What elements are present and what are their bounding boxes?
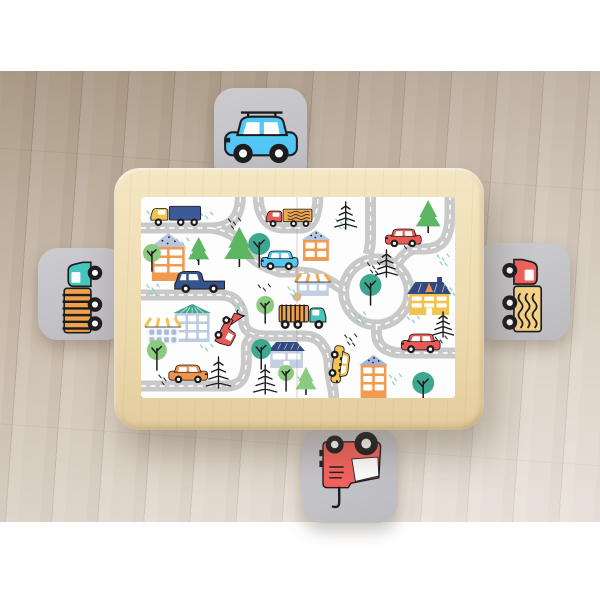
stool-bottom xyxy=(302,428,398,523)
kids-play-table xyxy=(114,168,484,430)
upside-down-tow-truck-decal xyxy=(305,431,395,521)
wall-background xyxy=(0,0,600,71)
stool-left xyxy=(38,248,126,340)
stool-right xyxy=(476,243,570,340)
city-road-map-artwork xyxy=(141,197,455,398)
foreground-white-band xyxy=(0,522,600,600)
log-truck-decal xyxy=(38,250,126,338)
road-play-mat xyxy=(141,197,455,398)
product-photo: { "meta": { "type": "product-photo", "su… xyxy=(0,0,600,600)
red-truck-decal xyxy=(478,247,568,337)
